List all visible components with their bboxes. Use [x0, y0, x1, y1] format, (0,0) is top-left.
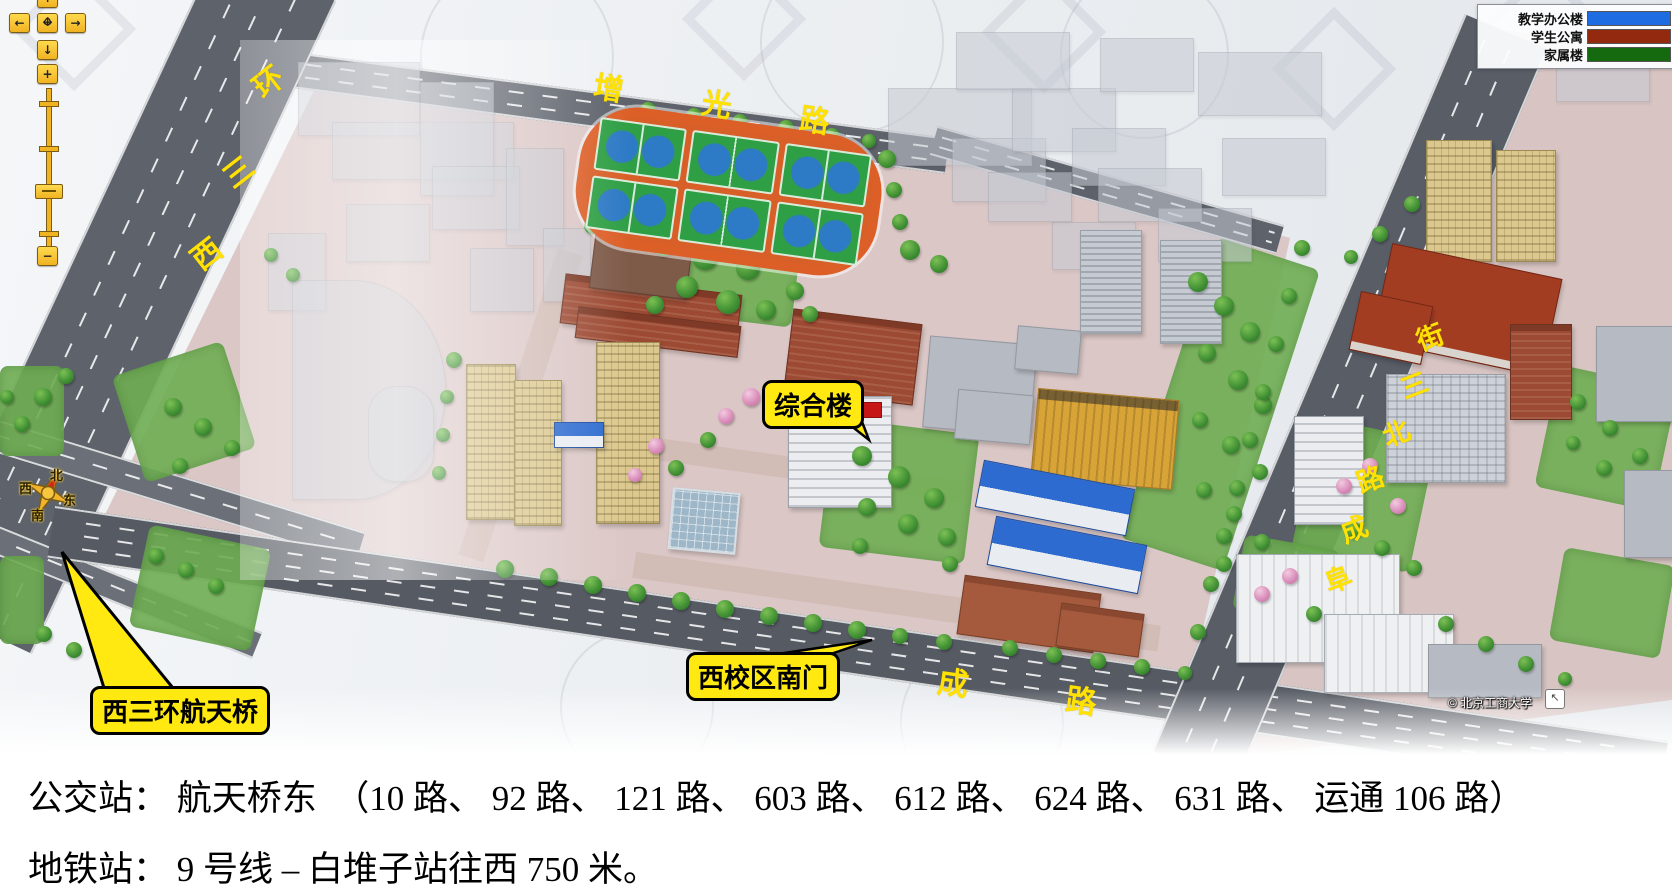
building	[1426, 140, 1492, 262]
tree	[900, 240, 920, 260]
zoom-slider-handle[interactable]	[35, 184, 63, 199]
tree	[1268, 336, 1284, 352]
map-corner-icon[interactable]: ↖	[1545, 689, 1565, 709]
building	[1496, 150, 1556, 262]
building	[554, 422, 604, 448]
tree	[1406, 560, 1422, 576]
tree	[852, 446, 872, 466]
tree	[1254, 534, 1270, 550]
tree	[1294, 240, 1310, 256]
tree	[1602, 420, 1618, 436]
campus-map-viewport[interactable]: 增 光 路 环 三 西 街 三 北 路 成 阜 阜 成 路 综合楼 西校区南门 …	[0, 0, 1672, 762]
tree	[1192, 412, 1208, 428]
building	[1596, 326, 1672, 422]
tree	[804, 614, 822, 632]
tree	[164, 398, 182, 416]
building	[466, 364, 516, 520]
compass-north-label: 北	[50, 465, 63, 484]
legend-swatch-teaching	[1587, 11, 1671, 26]
tree	[286, 268, 300, 282]
cherry-tree	[742, 388, 760, 406]
pan-center-icon: ↕	[38, 14, 57, 32]
legend-row: 学生公寓	[1483, 28, 1671, 45]
building	[988, 172, 1072, 222]
tennis-courts	[585, 117, 872, 266]
tree	[668, 460, 684, 476]
tree	[888, 466, 910, 488]
map-legend: 教学办公楼 学生公寓 家属楼	[1477, 4, 1672, 69]
tree	[1196, 482, 1212, 498]
tree	[1190, 624, 1206, 640]
tree	[878, 150, 896, 168]
tree	[584, 576, 602, 594]
building	[1198, 52, 1322, 116]
tree	[1570, 394, 1586, 410]
tree	[496, 560, 514, 578]
tree	[1372, 226, 1388, 242]
tree	[716, 600, 734, 618]
building	[514, 380, 562, 526]
zoom-in-button[interactable]: +	[37, 64, 58, 84]
tree	[1134, 659, 1150, 675]
tree	[672, 592, 690, 610]
tree	[848, 621, 866, 639]
compass-south-label: 南	[31, 505, 44, 524]
tree	[862, 134, 876, 148]
tree	[1222, 436, 1240, 454]
tree	[1596, 460, 1612, 476]
callout-south-gate: 西校区南门	[686, 652, 840, 701]
tree	[1229, 480, 1245, 496]
tree	[700, 432, 716, 448]
legend-swatch-family	[1587, 47, 1671, 62]
tree	[802, 306, 818, 322]
tree	[852, 538, 868, 554]
building	[667, 487, 740, 555]
tree	[0, 390, 14, 404]
tree	[264, 248, 278, 262]
building	[346, 204, 430, 262]
tree	[886, 182, 902, 198]
road-label-fucheng: 成	[935, 656, 972, 705]
map-copyright: © 北京工商大学	[1448, 694, 1532, 711]
compass-rose: 北 西 东 南	[14, 453, 98, 531]
legend-row: 家属楼	[1483, 46, 1671, 63]
legend-row: 教学办公楼	[1483, 10, 1671, 27]
tree	[924, 488, 944, 508]
building	[1222, 138, 1326, 196]
tree	[1216, 556, 1232, 572]
tree	[760, 607, 778, 625]
pan-down-button[interactable]: ↓	[37, 40, 58, 60]
tree	[1566, 436, 1580, 450]
tree	[1374, 540, 1390, 556]
tree	[1404, 196, 1420, 212]
tree	[942, 556, 958, 572]
tree	[716, 290, 740, 314]
cherry-tree	[648, 438, 664, 454]
tree	[1242, 432, 1258, 448]
tree	[1178, 666, 1192, 680]
tree	[930, 255, 948, 273]
tree	[1198, 344, 1216, 362]
transit-info: 公交站： 航天桥东 （10 路、 92 路、 121 路、 603 路、 612…	[0, 762, 1672, 885]
building	[470, 248, 534, 312]
tree	[540, 568, 558, 586]
zoom-slider-tick	[39, 231, 59, 237]
tree	[172, 458, 188, 474]
tree	[178, 562, 194, 578]
tree	[14, 416, 30, 432]
tree	[194, 418, 212, 436]
tree	[1240, 322, 1260, 342]
tree	[1518, 656, 1534, 672]
building	[368, 386, 434, 482]
tree	[224, 440, 240, 456]
tree	[66, 642, 82, 658]
tree	[1255, 384, 1271, 400]
tree	[1632, 448, 1648, 464]
tree	[1046, 647, 1062, 663]
tree	[440, 390, 454, 404]
tree	[786, 282, 804, 300]
building	[1510, 324, 1572, 420]
pan-center-button[interactable]: ↔ ↕	[37, 13, 58, 33]
pan-up-button[interactable]: ↑	[37, 0, 58, 8]
tree	[1438, 616, 1454, 632]
tree	[148, 548, 164, 564]
tree	[1203, 576, 1219, 592]
tree	[1214, 296, 1234, 316]
tree	[208, 578, 224, 594]
tree	[1228, 370, 1248, 390]
tree	[432, 466, 446, 480]
zoom-slider-tick	[39, 146, 59, 152]
zoom-slider-track[interactable]	[46, 88, 52, 248]
tree	[858, 498, 876, 516]
building	[1080, 230, 1142, 334]
tree	[34, 388, 52, 406]
cherry-tree	[1390, 498, 1406, 514]
tree	[96, 656, 110, 670]
tree	[436, 428, 450, 442]
tree	[36, 626, 52, 642]
pan-right-button[interactable]: →	[65, 13, 86, 33]
zoom-slider-tick	[39, 101, 59, 107]
building	[956, 32, 1070, 90]
building	[1014, 325, 1082, 374]
building	[1160, 240, 1222, 344]
tree	[938, 528, 956, 546]
tree	[892, 214, 908, 230]
cherry-tree	[1282, 568, 1298, 584]
tree	[1188, 272, 1208, 292]
legend-label: 学生公寓	[1531, 27, 1583, 46]
building	[1100, 38, 1194, 92]
tree	[646, 296, 664, 314]
pan-left-button[interactable]: ←	[9, 13, 30, 33]
tree	[446, 352, 462, 368]
zoom-out-button[interactable]: −	[37, 246, 58, 266]
tree	[676, 276, 698, 298]
tree	[628, 584, 646, 602]
tree	[1478, 636, 1494, 652]
tree	[936, 634, 952, 650]
tree	[898, 514, 918, 534]
cherry-tree	[1336, 478, 1352, 494]
tree	[1344, 250, 1358, 264]
callout-hangtianqiao: 西三环航天桥	[90, 686, 270, 735]
legend-swatch-dorm	[1587, 29, 1671, 44]
tree	[1306, 606, 1322, 622]
cherry-tree	[1254, 586, 1270, 602]
compass-east-label: 东	[63, 490, 76, 509]
tree	[1226, 506, 1242, 522]
legend-label: 家属楼	[1544, 45, 1583, 64]
callout-zonghelou: 综合楼	[762, 380, 864, 429]
tree	[1002, 640, 1018, 656]
bus-info-line: 公交站： 航天桥东 （10 路、 92 路、 121 路、 603 路、 612…	[28, 770, 1672, 821]
building	[954, 389, 1034, 445]
tree	[1281, 288, 1297, 304]
tree	[1090, 653, 1106, 669]
lawn	[0, 366, 64, 456]
legend-label: 教学办公楼	[1518, 9, 1583, 28]
building	[1624, 470, 1672, 558]
tree	[1216, 528, 1232, 544]
cherry-tree	[718, 408, 734, 424]
road-label-fucheng: 路	[1063, 674, 1100, 723]
tree	[892, 628, 908, 644]
lawn	[1549, 547, 1672, 659]
tree	[1252, 464, 1268, 480]
compass-west-label: 西	[19, 478, 32, 497]
building	[596, 342, 660, 524]
tree	[756, 300, 776, 320]
tree	[58, 368, 74, 384]
metro-info-line: 地铁站： 9 号线 – 白堆子站往西 750 米。	[28, 841, 1672, 892]
tree	[1558, 672, 1572, 686]
cherry-tree	[628, 468, 642, 482]
